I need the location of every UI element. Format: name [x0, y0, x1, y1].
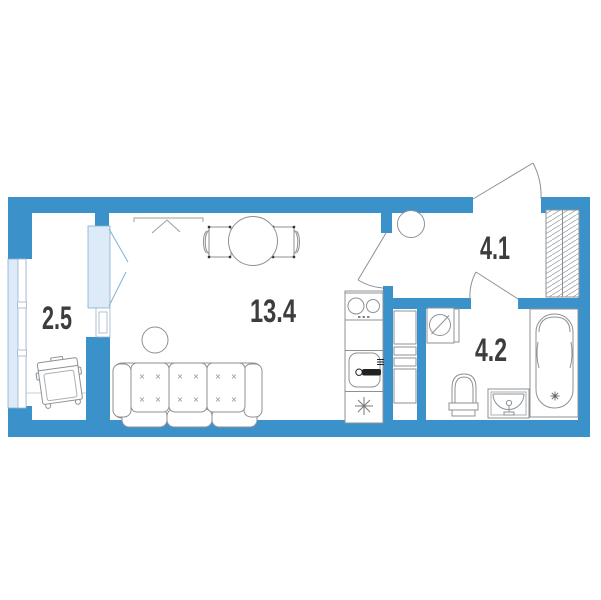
window-frame-tick: [18, 302, 27, 308]
svg-text:×: ×: [215, 372, 222, 381]
svg-text:×: ×: [139, 372, 146, 381]
balcony-area-label: 2.5: [42, 300, 72, 336]
living-door-leaf: [358, 233, 386, 280]
dining-table: [229, 217, 278, 266]
wall-right: [578, 197, 590, 437]
bathroom-area-label: 4.2: [475, 332, 507, 368]
toilet: [449, 374, 478, 416]
kitchen-unit: [345, 291, 384, 423]
hallway-stool: [398, 211, 425, 238]
sofa-cushion: [207, 363, 245, 412]
washing-machine: [427, 308, 459, 343]
bathroom-door-swing: [470, 272, 476, 299]
svg-text:×: ×: [231, 395, 238, 404]
wall-partition-lower: [86, 337, 110, 427]
entrance-door: [473, 163, 541, 199]
living-area-label: 13.4: [250, 293, 296, 329]
dining-chair-left: [204, 226, 232, 258]
sofa-cushion: [131, 363, 169, 412]
hallway-area-label: 4.1: [480, 230, 510, 266]
svg-text:×: ×: [177, 372, 184, 381]
sofa-armrest-right: [244, 364, 262, 417]
svg-text:×: ×: [193, 372, 200, 381]
svg-text:×: ×: [193, 395, 200, 404]
wall-divider-left: [383, 298, 471, 309]
pouf: [142, 327, 168, 353]
living-door-swing: [358, 280, 383, 288]
window-frame-tick: [18, 350, 27, 356]
svg-text:×: ×: [155, 395, 162, 404]
wall-left-lower: [8, 406, 32, 437]
floor-plan-svg: ×× ×× ×× ×× ×× ××: [0, 0, 601, 600]
living-room-door: [358, 233, 386, 288]
bathroom-sink: [488, 389, 529, 418]
hallway-closet: [546, 210, 579, 297]
wall-top-left: [8, 197, 473, 213]
dining-set: [204, 217, 300, 266]
sofa-armrest-left: [113, 364, 131, 417]
partition-frame-inner: [99, 312, 107, 333]
svg-text:×: ×: [177, 395, 184, 404]
svg-text:×: ×: [215, 395, 222, 404]
balcony-partition-glass: [88, 226, 110, 308]
entrance-door-swing: [533, 163, 541, 199]
burner-left: [348, 298, 364, 314]
wall-bathroom-left: [417, 298, 426, 428]
wall-partition-stub: [95, 213, 109, 226]
floor-plan: ×× ×× ×× ×× ×× ××: [0, 0, 601, 600]
wardrobe-symbol: [134, 218, 203, 233]
ventilation-shaft: [394, 311, 416, 403]
balcony-window-frame: [18, 259, 26, 408]
wall-livingdoor-stub: [381, 213, 392, 233]
burner-right: [367, 300, 380, 313]
sofa-cushion: [169, 363, 207, 412]
bathtub: [530, 309, 578, 417]
bathroom-door: [470, 272, 518, 299]
wall-left-upper: [8, 197, 32, 259]
svg-text:×: ×: [139, 395, 146, 404]
entrance-door-leaf: [473, 163, 533, 199]
sofa: ×× ×× ×× ×× ×× ××: [113, 363, 262, 427]
svg-text:×: ×: [231, 372, 238, 381]
balcony-door-swing: [109, 229, 128, 306]
balcony-armchair: [34, 354, 85, 409]
svg-text:×: ×: [155, 372, 162, 381]
bathroom-door-leaf: [476, 272, 518, 299]
wall-divider-right: [518, 298, 590, 309]
bathtub-drain: [551, 392, 560, 401]
